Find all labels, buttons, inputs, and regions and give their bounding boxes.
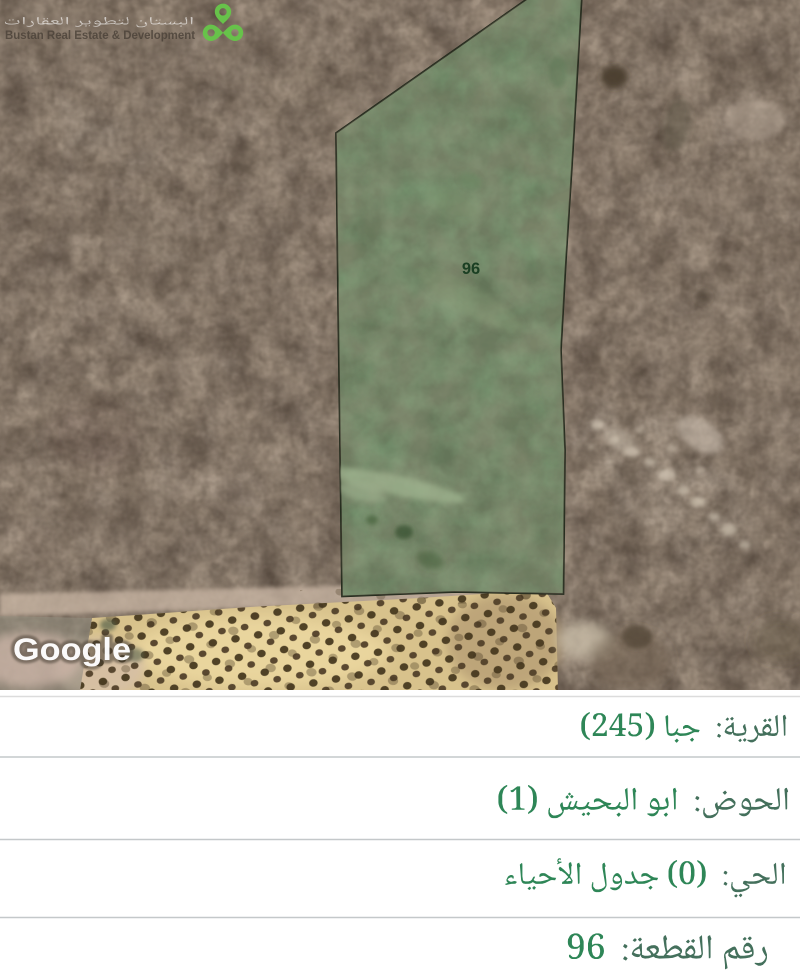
svg-text:Google: Google	[13, 631, 131, 667]
svg-text:Bustan Real Estate & Developme: Bustan Real Estate & Development	[5, 29, 195, 42]
svg-text:96: 96	[462, 260, 480, 278]
